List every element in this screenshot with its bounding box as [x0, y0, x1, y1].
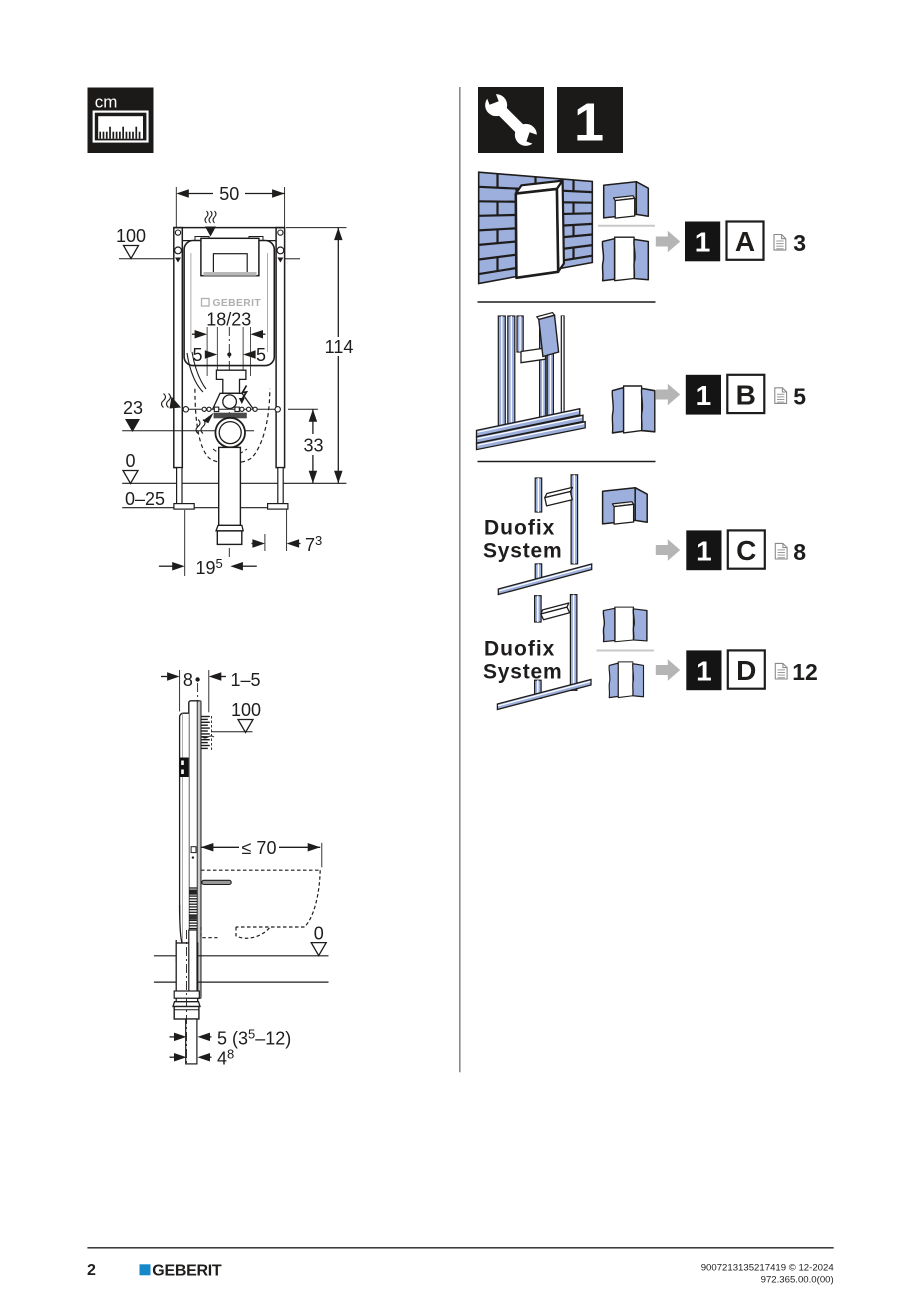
svg-text:0: 0	[314, 924, 324, 944]
svg-text:1–5: 1–5	[231, 670, 261, 690]
svg-text:0: 0	[125, 451, 135, 471]
svg-text:GEBERIT: GEBERIT	[152, 1262, 222, 1279]
svg-text:System: System	[483, 661, 563, 684]
svg-text:Duofix: Duofix	[484, 638, 555, 661]
svg-text:33: 33	[303, 436, 323, 456]
svg-text:8: 8	[183, 670, 193, 690]
svg-text:≤ 70: ≤ 70	[242, 838, 277, 858]
svg-text:9007213135217419 © 12-2024: 9007213135217419 © 12-2024	[701, 1263, 835, 1274]
svg-text:2: 2	[87, 1262, 96, 1279]
svg-text:1: 1	[696, 536, 712, 567]
svg-text:18/23: 18/23	[206, 310, 251, 330]
svg-text:0–25: 0–25	[125, 489, 165, 509]
svg-text:100: 100	[231, 700, 261, 720]
svg-text:GEBERIT: GEBERIT	[213, 298, 262, 309]
svg-text:System: System	[483, 540, 563, 563]
svg-text:8: 8	[793, 539, 806, 565]
svg-text:C: C	[736, 535, 756, 566]
svg-text:972.365.00.0(00): 972.365.00.0(00)	[761, 1274, 834, 1285]
svg-text:50: 50	[219, 184, 239, 204]
svg-text:3: 3	[793, 230, 806, 256]
svg-text:D: D	[736, 655, 756, 686]
svg-text:1: 1	[696, 656, 712, 687]
svg-text:12: 12	[792, 659, 818, 685]
svg-text:1: 1	[695, 227, 711, 258]
svg-text:A: A	[735, 226, 755, 257]
svg-text:5: 5	[256, 345, 266, 365]
svg-text:23: 23	[123, 398, 143, 418]
svg-text:114: 114	[325, 337, 354, 357]
svg-text:Duofix: Duofix	[484, 517, 555, 540]
svg-text:cm: cm	[95, 93, 118, 112]
svg-text:1: 1	[574, 93, 604, 153]
svg-text:B: B	[736, 379, 756, 410]
svg-text:100: 100	[116, 226, 146, 246]
svg-text:5: 5	[793, 383, 806, 409]
svg-text:1: 1	[696, 380, 712, 411]
